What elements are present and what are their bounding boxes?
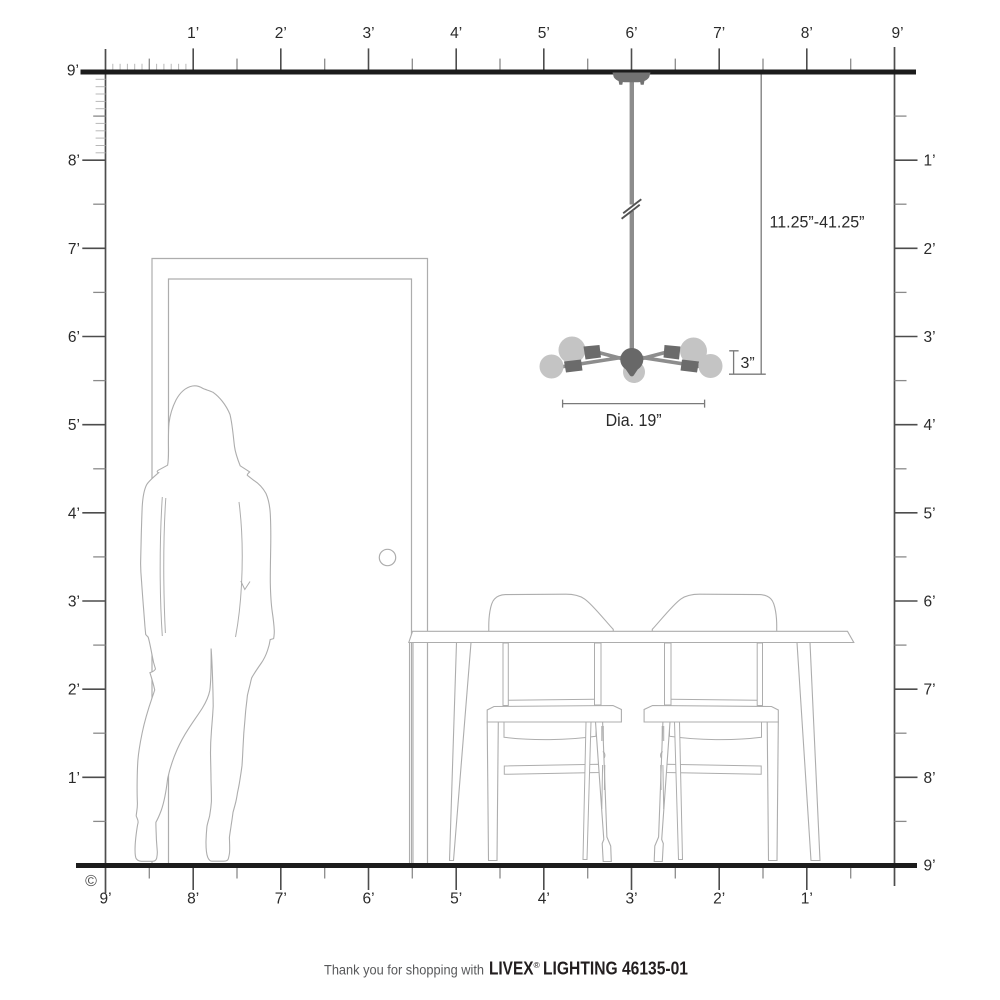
svg-text:2’: 2’ [275, 25, 287, 42]
svg-text:7’: 7’ [68, 241, 80, 258]
svg-text:9’: 9’ [99, 891, 111, 908]
svg-text:4’: 4’ [450, 25, 462, 42]
svg-text:8’: 8’ [924, 770, 936, 787]
svg-text:5’: 5’ [68, 417, 80, 434]
svg-text:Dia. 19”: Dia. 19” [606, 410, 662, 430]
svg-text:6’: 6’ [68, 329, 80, 346]
svg-text:©: © [85, 873, 97, 890]
svg-text:7’: 7’ [713, 25, 725, 42]
svg-text:7’: 7’ [924, 682, 936, 699]
svg-text:8’: 8’ [801, 25, 813, 42]
svg-text:3”: 3” [741, 355, 755, 372]
svg-text:LIGHTING 46135-01: LIGHTING 46135-01 [543, 958, 688, 979]
svg-text:5’: 5’ [538, 25, 550, 42]
svg-text:2’: 2’ [68, 682, 80, 699]
svg-text:LIVEX: LIVEX [489, 958, 534, 979]
svg-text:3’: 3’ [68, 594, 80, 611]
svg-text:6’: 6’ [924, 594, 936, 611]
svg-text:3’: 3’ [924, 329, 936, 346]
svg-text:8’: 8’ [68, 153, 80, 170]
svg-text:3’: 3’ [625, 891, 637, 908]
svg-text:Thank you for shopping with: Thank you for shopping with [324, 963, 484, 978]
svg-text:11.25”-41.25”: 11.25”-41.25” [770, 213, 865, 232]
svg-text:9’: 9’ [924, 858, 936, 875]
svg-text:9’: 9’ [891, 25, 903, 42]
svg-text:1’: 1’ [924, 153, 936, 170]
svg-text:4’: 4’ [68, 505, 80, 522]
svg-text:6’: 6’ [362, 891, 374, 908]
svg-text:8’: 8’ [187, 891, 199, 908]
svg-text:1’: 1’ [187, 25, 199, 42]
svg-text:2’: 2’ [713, 891, 725, 908]
svg-text:®: ® [534, 960, 541, 970]
svg-text:5’: 5’ [450, 891, 462, 908]
svg-text:3’: 3’ [362, 25, 374, 42]
svg-text:4’: 4’ [538, 891, 550, 908]
svg-text:4’: 4’ [924, 417, 936, 434]
svg-text:5’: 5’ [924, 505, 936, 522]
svg-text:7’: 7’ [275, 891, 287, 908]
svg-text:9’: 9’ [67, 63, 79, 80]
svg-text:2’: 2’ [924, 241, 936, 258]
svg-text:1’: 1’ [801, 891, 813, 908]
svg-text:6’: 6’ [625, 25, 637, 42]
svg-text:1’: 1’ [68, 770, 80, 787]
